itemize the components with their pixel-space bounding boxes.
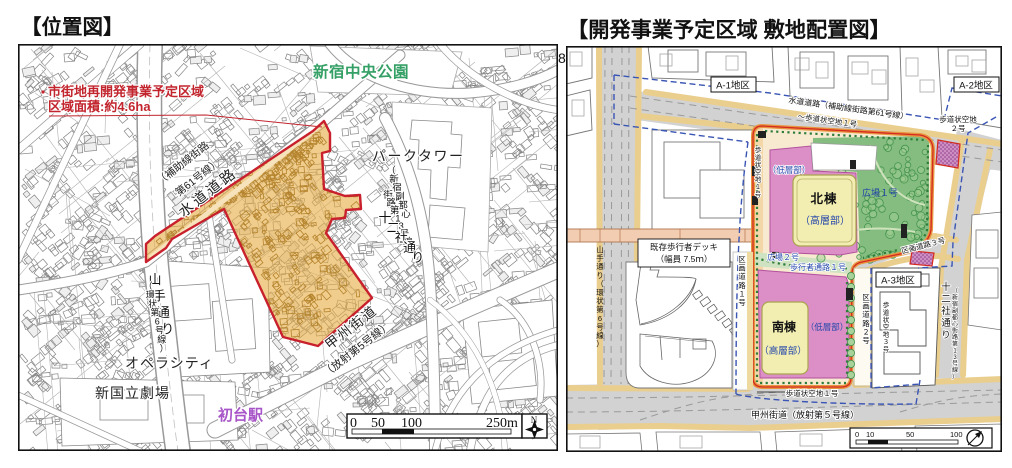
svg-text:10: 10 — [866, 430, 874, 439]
svg-text:歩道状空地１号: 歩道状空地１号 — [755, 145, 762, 198]
svg-text:広場１号: 広場１号 — [862, 187, 898, 198]
svg-text:パークタワー: パークタワー — [372, 148, 464, 164]
svg-text:100: 100 — [950, 430, 963, 439]
svg-text:広場２号: 広場２号 — [767, 252, 799, 262]
svg-text:市街地再開発事業予定区域: 市街地再開発事業予定区域 — [48, 84, 204, 99]
svg-text:オペラシティ: オペラシティ — [125, 355, 214, 371]
svg-text:歩道状空地: 歩道状空地 — [939, 114, 977, 124]
svg-text:A-1地区: A-1地区 — [716, 80, 750, 92]
svg-text:十二社通り: 十二社通り — [941, 281, 951, 341]
svg-text:歩道状空地３号: 歩道状空地３号 — [883, 300, 890, 353]
svg-text:区域面積:約4.6ha: 区域面積:約4.6ha — [48, 99, 151, 114]
svg-text:（低層部）: （低層部） — [806, 322, 849, 332]
svg-text:歩行者通路１号: 歩行者通路１号 — [790, 262, 846, 272]
svg-text:区画道路１号: 区画道路１号 — [738, 255, 746, 307]
svg-text:0: 0 — [855, 430, 859, 439]
svg-text:A-3地区: A-3地区 — [881, 275, 915, 287]
svg-text:初台駅: 初台駅 — [218, 406, 264, 424]
svg-text:北棟: 北棟 — [810, 191, 837, 206]
svg-text:区画道路２号: 区画道路２号 — [862, 293, 870, 345]
svg-text:50: 50 — [906, 430, 914, 439]
svg-text:（幅員 7.5ｍ）: （幅員 7.5ｍ） — [656, 254, 713, 264]
svg-text:山手通り（環状第6号線）: 山手通り（環状第6号線） — [596, 244, 604, 349]
svg-text:歩道状空地１号: 歩道状空地１号 — [786, 388, 839, 398]
svg-text:新国立劇場: 新国立劇場 — [95, 385, 170, 401]
svg-text:南棟: 南棟 — [772, 319, 797, 334]
svg-text:（高層部）: （高層部） — [759, 345, 807, 357]
svg-text:（低層部）: （低層部） — [768, 165, 811, 175]
svg-text:甲州街道（放射第５号線）: 甲州街道（放射第５号線） — [751, 409, 859, 420]
svg-text:（新宿副都心街路第13号線）: （新宿副都心街路第13号線） — [952, 288, 958, 381]
svg-text:２号: ２号 — [951, 124, 966, 133]
svg-text:（高層部）: （高層部） — [800, 214, 850, 227]
svg-text:新宿中央公園: 新宿中央公園 — [313, 62, 409, 81]
svg-text:既存歩行者デッキ: 既存歩行者デッキ — [650, 242, 718, 252]
svg-text:A-2地区: A-2地区 — [959, 80, 993, 92]
